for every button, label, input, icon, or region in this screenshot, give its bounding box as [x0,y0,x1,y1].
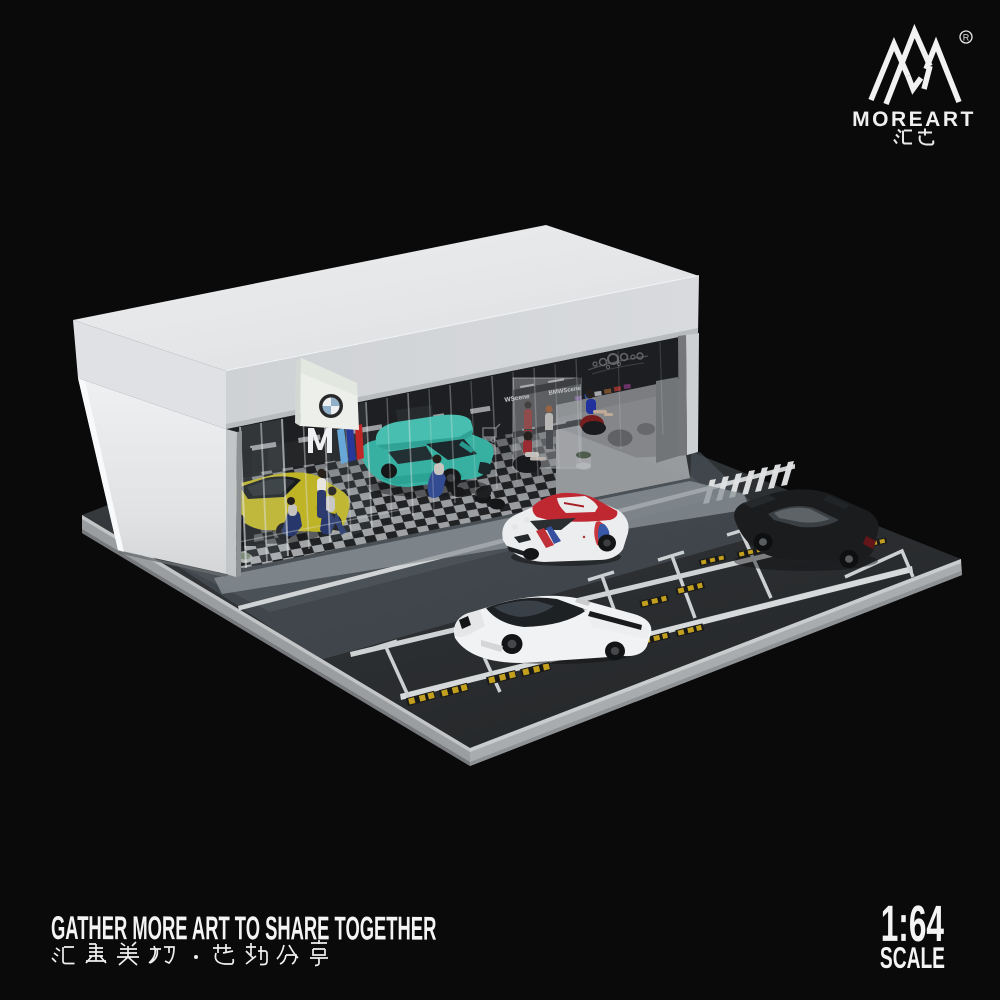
svg-text:MOREART: MOREART [852,108,976,131]
svg-text:R: R [963,33,970,43]
svg-text:SCALE: SCALE [880,942,945,975]
svg-text:GATHER MORE ART TO SHARE TOGET: GATHER MORE ART TO SHARE TOGETHER [51,909,436,947]
